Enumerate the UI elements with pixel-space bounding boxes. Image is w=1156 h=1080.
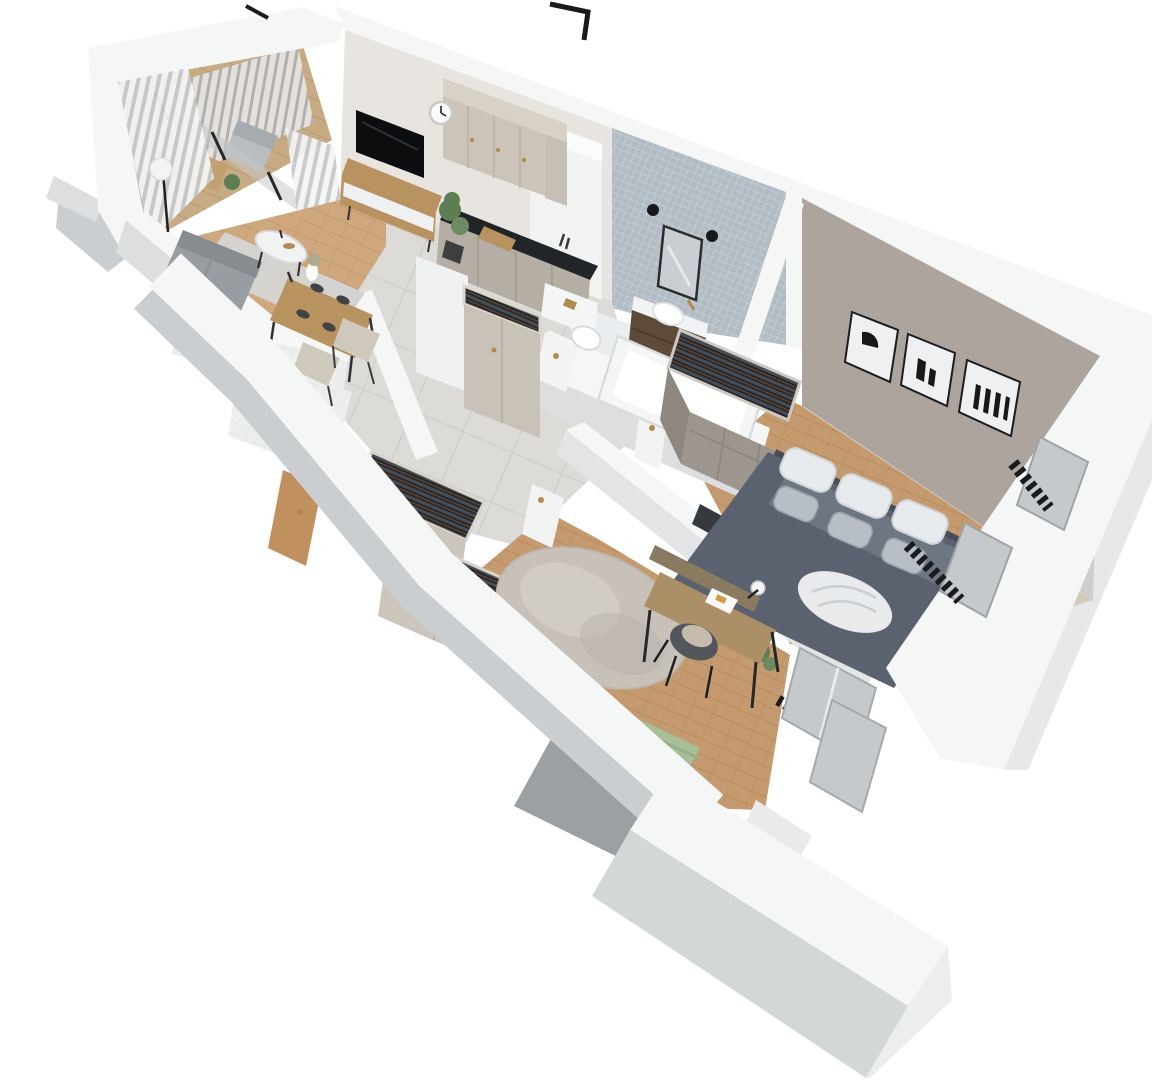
- flower-vase: [306, 263, 318, 281]
- antenna-icon: [550, 4, 588, 40]
- wc-door-handle: [297, 509, 304, 516]
- floor-lamp-globe: [150, 158, 172, 180]
- sconce-left: [647, 204, 659, 216]
- hall-cabinet-white: [416, 256, 468, 392]
- bathroom-mirror: [658, 226, 702, 300]
- vase-flowers: [308, 254, 320, 266]
- wardrobe-knob: [492, 348, 497, 353]
- bathroom-door-handle: [553, 353, 559, 359]
- cabinet-knob: [470, 138, 474, 142]
- living-plant-leaves-2: [451, 217, 469, 235]
- bedroom-door-handle: [649, 425, 655, 431]
- kitchen-tall-cabinet: [545, 134, 567, 206]
- second-room-door-handle: [538, 497, 544, 503]
- cabinet-knob: [496, 148, 500, 152]
- balcony-plant: [224, 174, 240, 190]
- apartment-3d-scene: [0, 0, 1156, 1080]
- cabinet-knob: [522, 158, 526, 162]
- coffee-table-tray: [283, 243, 295, 249]
- sconce-right: [706, 230, 718, 242]
- floorplan-render: [0, 0, 1156, 1080]
